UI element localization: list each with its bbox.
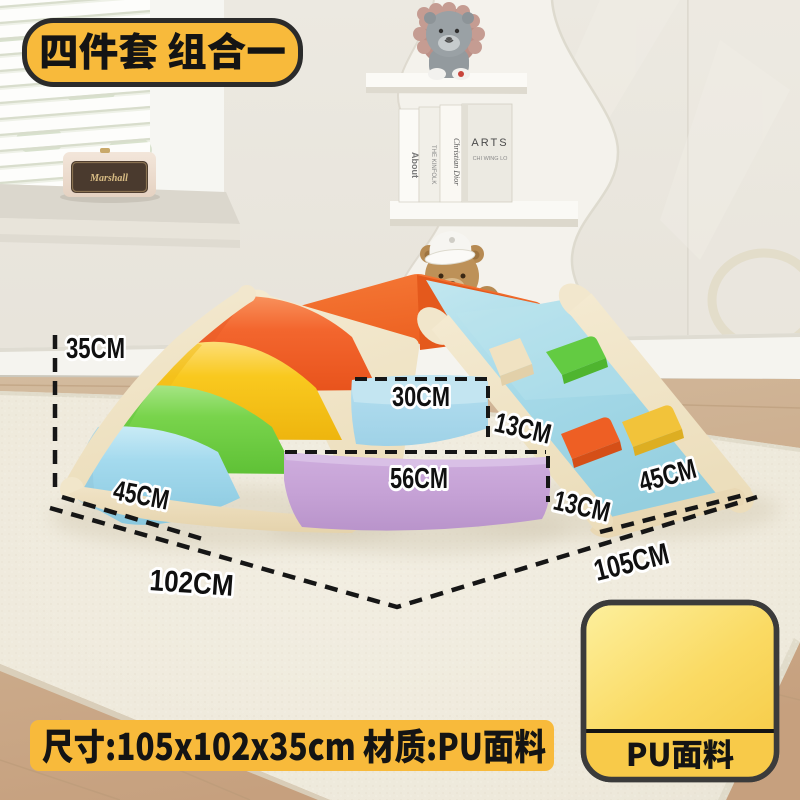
svg-text:CHI WING LO: CHI WING LO <box>473 156 509 162</box>
svg-text:THE KINFOLK: THE KINFOLK <box>430 145 436 184</box>
svg-text:35CM: 35CM <box>66 333 125 365</box>
svg-text:ARTS: ARTS <box>471 137 508 149</box>
svg-text:About: About <box>410 152 420 178</box>
svg-text:Christian Dior: Christian Dior <box>452 138 461 186</box>
svg-text:Marshall: Marshall <box>89 173 128 184</box>
svg-text:30CM: 30CM <box>392 381 450 412</box>
svg-text:56CM: 56CM <box>390 463 448 495</box>
svg-text:102CM: 102CM <box>149 564 235 603</box>
